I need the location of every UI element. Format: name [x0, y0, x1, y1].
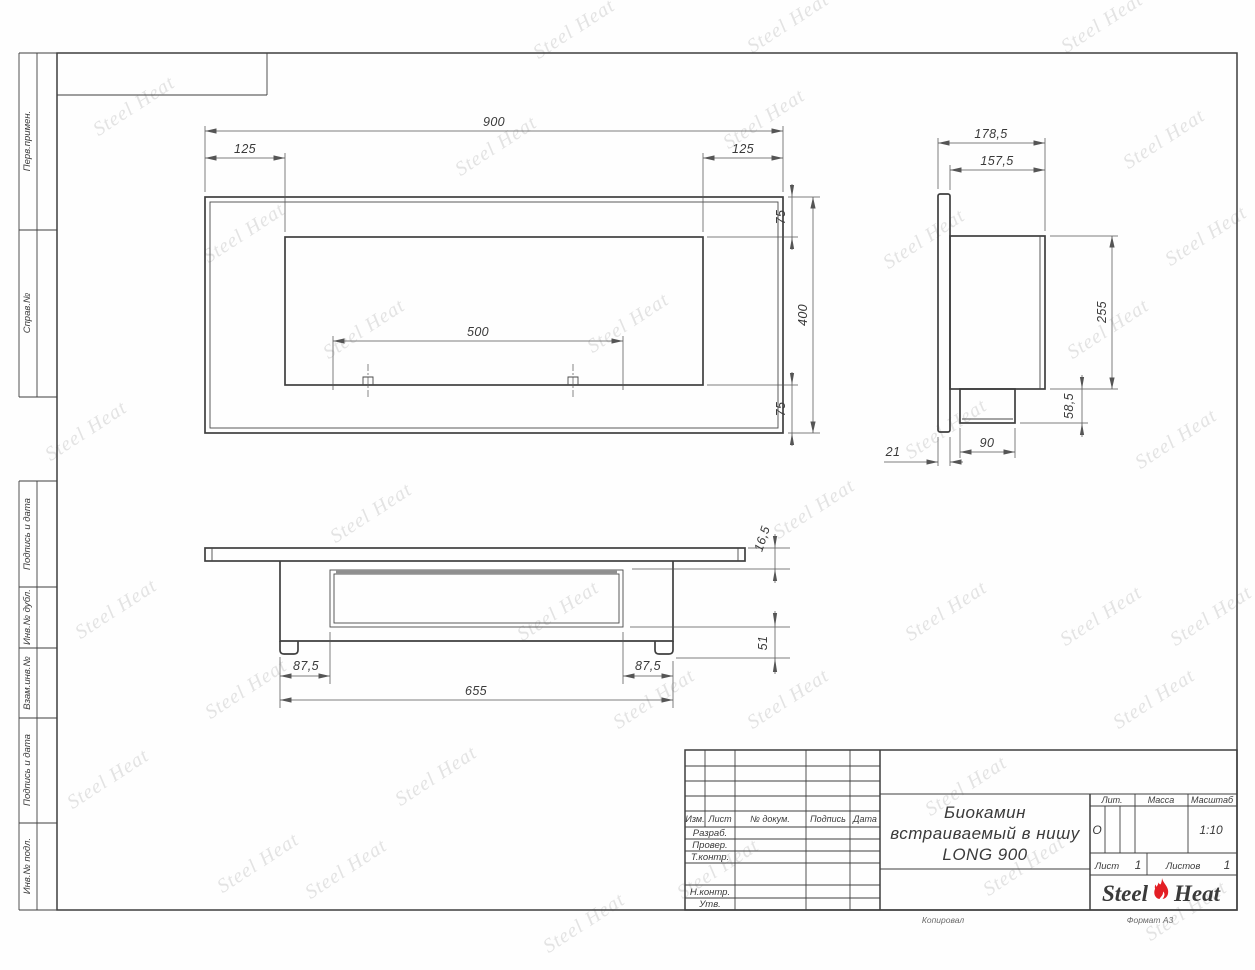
engineering-drawing: Перв.примен. Справ.№ Подпись и дата Инв.…	[0, 0, 1255, 970]
tb-sheets-label: Листов	[1165, 861, 1201, 872]
sheet-frame	[57, 53, 1237, 910]
dim-side-flange: 21	[885, 445, 901, 459]
tb-col-list: Лист	[707, 814, 732, 824]
doc-title-line3: LONG 900	[942, 845, 1027, 864]
top-view-dimensions: 16,5 51 87,5 87,5 655	[280, 524, 790, 708]
dim-top-margin-left: 87,5	[293, 659, 319, 673]
tb-sheet-value: 1	[1135, 858, 1142, 872]
footer-copy: Копировал	[922, 915, 964, 925]
dim-front-opening: 500	[467, 325, 489, 339]
tb-sheets-value: 1	[1224, 858, 1231, 872]
logo-word-heat: Heat	[1173, 881, 1221, 906]
tb-sheet-label: Лист	[1094, 861, 1120, 872]
sidebar-label-podpis-data-2: Подпись и дата	[22, 734, 33, 806]
sidebar-label-sprav-no: Справ.№	[22, 293, 33, 334]
dim-front-inset-left: 125	[234, 142, 256, 156]
dim-side-depth: 178,5	[974, 127, 1007, 141]
drawing-sheet: Steel HeatSteel HeatSteel HeatSteel Heat…	[0, 0, 1255, 970]
tb-mass-label: Масса	[1148, 795, 1175, 805]
top-view	[205, 548, 745, 654]
tb-scale-value: 1:10	[1199, 823, 1223, 837]
tb-scale-label: Масштаб	[1191, 795, 1234, 805]
tb-col-izm: Изм.	[685, 814, 704, 824]
title-block: Изм. Лист № докум. Подпись Дата Разраб. …	[685, 750, 1237, 925]
tb-row-prover: Провер.	[692, 840, 727, 851]
dim-front-inset-right: 125	[732, 142, 754, 156]
sidebar-label-vzam-inv: Взам.инв.№	[22, 656, 33, 709]
tb-row-utv: Утв.	[698, 899, 721, 910]
dim-side-body-height: 255	[1095, 301, 1109, 324]
dim-top-plate: 16,5	[752, 524, 773, 553]
front-view	[205, 197, 783, 433]
dim-top-rear: 51	[756, 636, 770, 651]
tb-col-docnum: № докум.	[750, 814, 790, 824]
tb-col-podpis: Подпись	[810, 814, 846, 824]
tb-row-razrab: Разраб.	[693, 828, 727, 839]
sidebar-label-inv-dubl: Инв.№ дубл.	[22, 589, 33, 645]
dim-front-top: 75	[774, 210, 788, 225]
tb-lit-label: Лит.	[1100, 795, 1122, 805]
dim-front-bottom: 75	[774, 402, 788, 417]
logo-word-steel: Steel	[1102, 881, 1149, 906]
sidebar-label-inv-podl: Инв.№ подл.	[22, 838, 33, 894]
sidebar-label-podpis-data-1: Подпись и дата	[22, 498, 33, 570]
flame-icon	[1154, 878, 1168, 899]
side-view-dimensions: 178,5 157,5 255 58,5 90	[884, 127, 1118, 466]
dim-front-height: 400	[796, 304, 810, 326]
footer-format: Формат А3	[1127, 915, 1174, 925]
tb-col-data: Дата	[852, 814, 877, 824]
side-view	[938, 194, 1045, 432]
tb-row-nkontr: Н.контр.	[690, 887, 730, 898]
dim-side-body-depth: 157,5	[980, 154, 1013, 168]
frame-sidebar: Перв.примен. Справ.№ Подпись и дата Инв.…	[19, 53, 57, 910]
tb-row-tkontr: Т.контр.	[691, 852, 729, 863]
dim-front-width: 900	[483, 115, 505, 129]
doc-title-line1: Биокамин	[944, 803, 1026, 822]
doc-title-line2: встраиваемый в нишу	[890, 824, 1080, 843]
steel-heat-logo: Steel Heat	[1102, 878, 1221, 906]
dim-side-box-depth: 90	[980, 436, 995, 450]
dim-side-box-height: 58,5	[1062, 393, 1076, 419]
dim-top-margin-right: 87,5	[635, 659, 661, 673]
front-view-dimensions: 900 125 125 500 75 400	[205, 115, 820, 446]
dim-top-body-width: 655	[465, 684, 487, 698]
tb-lit-value: О	[1092, 823, 1101, 837]
sidebar-label-perv-primen: Перв.примен.	[22, 111, 33, 172]
